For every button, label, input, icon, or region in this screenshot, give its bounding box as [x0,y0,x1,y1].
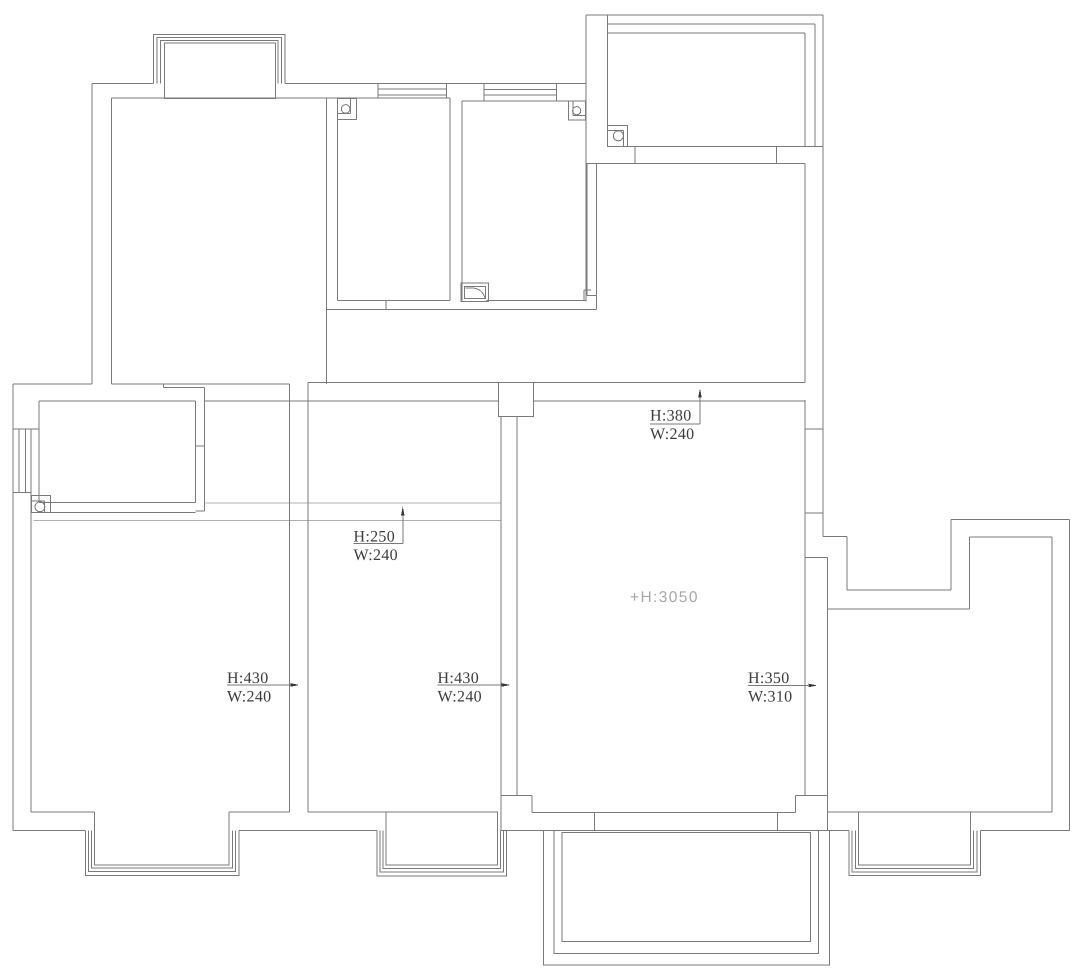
svg-text:H:430: H:430 [438,670,480,687]
svg-text:H:430: H:430 [227,670,269,687]
svg-text:H:350: H:350 [748,670,790,687]
svg-text:W:310: W:310 [748,689,792,706]
svg-text:H:250: H:250 [354,529,396,546]
svg-text:W:240: W:240 [650,426,694,443]
svg-text:+H:3050: +H:3050 [630,589,699,606]
svg-text:W:240: W:240 [438,689,482,706]
svg-text:W:240: W:240 [227,689,271,706]
svg-text:H:380: H:380 [650,408,692,425]
svg-text:W:240: W:240 [354,547,398,564]
